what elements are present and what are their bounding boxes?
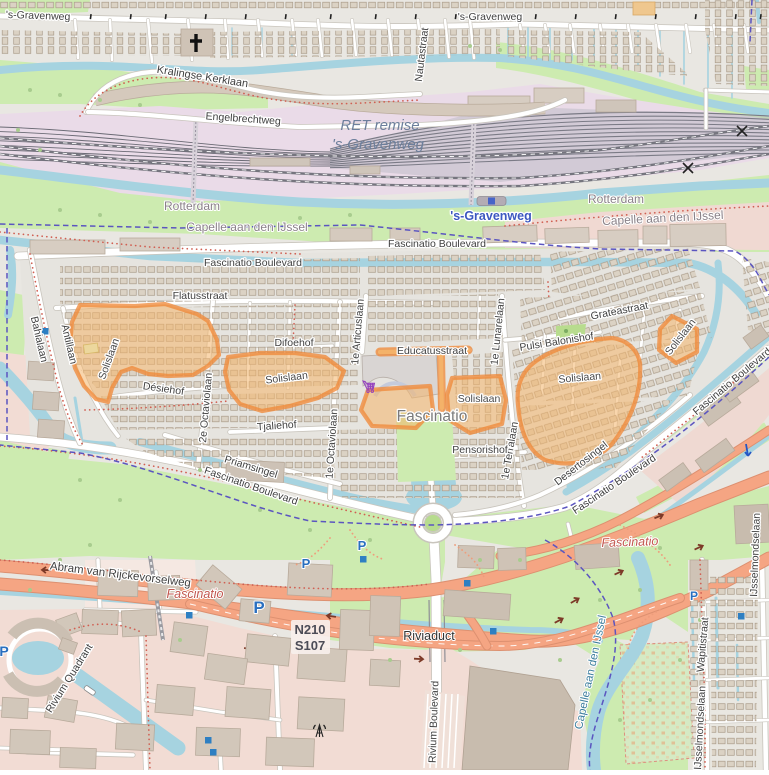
- svg-text:Rotterdam: Rotterdam: [588, 192, 644, 206]
- svg-text:Capelle aan den IJssel: Capelle aan den IJssel: [186, 220, 307, 234]
- svg-text:P: P: [690, 589, 698, 603]
- svg-text:N210: N210: [294, 622, 325, 637]
- svg-text:Fascinatio: Fascinatio: [601, 534, 658, 550]
- svg-text:P: P: [302, 556, 311, 571]
- svg-text:RET remise: RET remise: [340, 117, 419, 134]
- svg-text:P: P: [0, 643, 9, 659]
- svg-text:'s-Gravenweg: 's-Gravenweg: [6, 9, 71, 23]
- svg-text:Solislaan: Solislaan: [458, 393, 501, 405]
- svg-text:P: P: [358, 538, 367, 553]
- svg-text:P: P: [253, 598, 264, 617]
- svg-text:Flatusstraat: Flatusstraat: [173, 290, 228, 302]
- svg-text:Educatusstraat: Educatusstraat: [397, 345, 467, 357]
- svg-text:'s-Gravenweg: 's-Gravenweg: [458, 11, 523, 23]
- svg-text:Fascinatio Boulevard: Fascinatio Boulevard: [204, 257, 302, 269]
- svg-text:Fascinatio: Fascinatio: [397, 408, 468, 425]
- svg-text:S107: S107: [295, 638, 325, 653]
- svg-text:Riviaduct: Riviaduct: [403, 629, 455, 643]
- svg-text:Fascinatio: Fascinatio: [167, 587, 224, 601]
- svg-text:Rotterdam: Rotterdam: [164, 199, 220, 213]
- svg-text:'s-Gravenweg: 's-Gravenweg: [450, 209, 531, 223]
- svg-text:'s-Gravenweg: 's-Gravenweg: [332, 136, 425, 153]
- svg-text:Difoehof: Difoehof: [274, 337, 313, 349]
- svg-text:Fascinatio Boulevard: Fascinatio Boulevard: [388, 238, 486, 250]
- svg-text:Pensorishof: Pensorishof: [452, 444, 508, 456]
